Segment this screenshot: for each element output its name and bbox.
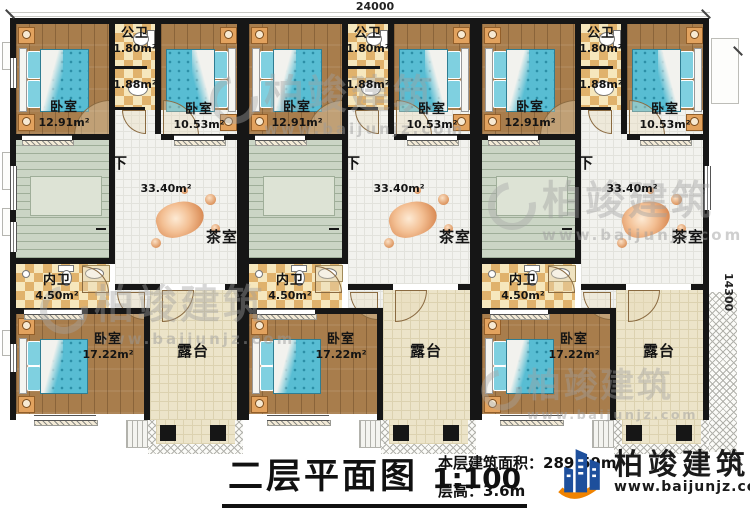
wall xyxy=(348,284,393,290)
window xyxy=(22,135,72,141)
floor-area-label: 本层建筑面积： xyxy=(438,454,543,472)
bed-pillow xyxy=(493,366,507,391)
nightstand xyxy=(484,27,501,44)
nightstand xyxy=(453,27,470,44)
window xyxy=(500,415,562,421)
wall xyxy=(225,284,243,290)
wall xyxy=(348,66,380,69)
terrace-label: 露台 xyxy=(168,342,218,360)
wall xyxy=(581,284,626,290)
nightstand xyxy=(251,396,268,413)
window xyxy=(34,415,96,421)
room-label-bedroom-top-left: 卧室 12.91m² xyxy=(261,100,333,129)
tea-room-area-label: 33.40m² xyxy=(592,182,672,195)
tea-room-label: 茶室 xyxy=(198,228,246,246)
company-logo: 柏竣建筑 www.baijunjz.com xyxy=(556,444,750,500)
wall xyxy=(581,107,611,110)
terrace-pillar xyxy=(210,425,226,441)
stair-direction-mark xyxy=(562,228,572,230)
nightstand xyxy=(18,27,35,44)
nightstand xyxy=(484,396,501,413)
terrace-label: 露台 xyxy=(634,342,684,360)
tea-room-area-label: 33.40m² xyxy=(126,182,206,195)
bed-pillow xyxy=(27,341,41,366)
staircase xyxy=(482,140,575,258)
wall xyxy=(144,314,150,420)
wall xyxy=(610,314,616,420)
window xyxy=(10,166,17,210)
terrace-pillar xyxy=(443,425,459,441)
pebble xyxy=(205,194,216,205)
staircase xyxy=(16,140,109,258)
wall xyxy=(243,258,348,264)
nightstand xyxy=(251,318,268,335)
wall xyxy=(115,107,145,110)
stairs-down-label: 下 xyxy=(108,154,132,172)
staircase xyxy=(249,140,342,258)
terrace-pillar xyxy=(160,425,176,441)
window xyxy=(10,222,17,252)
bed-pillow xyxy=(214,51,228,79)
unit-1: 卧室 12.91m² 公卫 1.80m² 1.88m² 卧室 10.53m² 下… xyxy=(10,18,243,420)
logo-site: www.baijunjz.com xyxy=(614,479,750,495)
bed-pillow xyxy=(27,51,41,79)
wall xyxy=(691,284,709,290)
wall xyxy=(458,284,476,290)
bed-sheet xyxy=(507,340,529,393)
stair-direction-mark xyxy=(96,228,106,230)
logo-name: 柏竣建筑 xyxy=(614,449,750,479)
floor-plan-canvas: 24000 14300 xyxy=(0,0,750,511)
tea-room-label: 茶室 xyxy=(664,228,712,246)
window xyxy=(10,58,17,88)
room-label-bedroom-top-right: 卧室 10.53m² xyxy=(398,102,466,131)
bed-pillow xyxy=(260,341,274,366)
window xyxy=(704,166,711,210)
window xyxy=(24,309,82,315)
wall xyxy=(348,107,378,110)
wall xyxy=(10,258,115,264)
stair-landing xyxy=(263,176,335,216)
nightstand xyxy=(251,27,268,44)
window xyxy=(407,135,457,141)
unit-2: 卧室 12.91m² 公卫 1.80m² 1.88m² 卧室 10.53m² 下… xyxy=(243,18,476,420)
floor-height-info: 层高：3.6m xyxy=(438,480,525,501)
terrace-pillar xyxy=(676,425,692,441)
wall xyxy=(115,66,147,69)
pebble xyxy=(438,194,449,205)
stairs-down-label: 下 xyxy=(341,154,365,172)
room-label-public-bath: 公卫 1.80m² xyxy=(113,26,157,55)
pebble xyxy=(671,194,682,205)
room-label-public-bath-lower: 1.88m² xyxy=(346,78,390,91)
logo-building-icon xyxy=(556,444,608,500)
bed-headboard xyxy=(252,48,260,112)
stair-direction-mark xyxy=(329,228,339,230)
building: 卧室 12.91m² 公卫 1.80m² 1.88m² 卧室 10.53m² 下… xyxy=(10,18,709,420)
window xyxy=(10,344,17,372)
room-label-inner-bath: 内卫 4.50m² xyxy=(22,273,92,302)
wall xyxy=(703,18,709,420)
room-label-bedroom-top-left: 卧室 12.91m² xyxy=(494,100,566,129)
pebble xyxy=(151,238,161,248)
room-label-bedroom-top-left: 卧室 12.91m² xyxy=(28,100,100,129)
nightstand xyxy=(18,318,35,335)
terrace-steps xyxy=(359,420,383,448)
unit-3: 卧室 12.91m² 公卫 1.80m² 1.88m² 卧室 10.53m² 下… xyxy=(476,18,709,420)
bed-sheet xyxy=(274,340,296,393)
terrace-label: 露台 xyxy=(401,342,451,360)
nightstand xyxy=(220,27,237,44)
dimension-top: 24000 xyxy=(300,0,450,13)
stair-landing xyxy=(496,176,568,216)
window xyxy=(640,135,690,141)
bed-headboard xyxy=(252,338,260,394)
room-label-bedroom-bottom: 卧室 17.22m² xyxy=(536,332,612,361)
wall xyxy=(377,314,383,420)
window xyxy=(255,135,305,141)
tea-room-area-label: 33.40m² xyxy=(359,182,439,195)
bed-headboard xyxy=(485,48,493,112)
terrace-pillar xyxy=(626,425,642,441)
window xyxy=(174,135,224,141)
nightstand xyxy=(686,27,703,44)
pebble xyxy=(617,238,627,248)
window xyxy=(267,415,329,421)
terrace-steps xyxy=(126,420,150,448)
window xyxy=(488,135,538,141)
tea-room-label: 茶室 xyxy=(431,228,479,246)
room-label-bedroom-top-right: 卧室 10.53m² xyxy=(165,102,233,131)
bed-pillow xyxy=(493,51,507,79)
bed-pillow xyxy=(680,51,694,79)
bed-headboard xyxy=(19,338,27,394)
bed-headboard xyxy=(485,338,493,394)
terrace-pillar xyxy=(393,425,409,441)
pebble xyxy=(384,238,394,248)
window xyxy=(257,309,315,315)
stairs-down-label: 下 xyxy=(574,154,598,172)
room-label-public-bath-lower: 1.88m² xyxy=(579,78,623,91)
room-label-public-bath-lower: 1.88m² xyxy=(113,78,157,91)
room-label-bedroom-top-right: 卧室 10.53m² xyxy=(631,102,699,131)
bed-headboard xyxy=(19,48,27,112)
bed-pillow xyxy=(493,341,507,366)
room-label-bedroom-bottom: 卧室 17.22m² xyxy=(303,332,379,361)
floor-height-value: 3.6m xyxy=(483,482,525,500)
nightstand xyxy=(484,318,501,335)
floor-height-label: 层高： xyxy=(438,482,483,500)
wall xyxy=(581,66,613,69)
wall xyxy=(243,18,249,420)
wall xyxy=(476,18,709,24)
window xyxy=(490,309,548,315)
wall xyxy=(10,18,243,24)
room-label-public-bath: 公卫 1.80m² xyxy=(346,26,390,55)
room-label-bedroom-bottom: 卧室 17.22m² xyxy=(70,332,146,361)
bed-sheet xyxy=(41,340,63,393)
stair-landing xyxy=(30,176,102,216)
wall xyxy=(476,18,482,420)
nightstand xyxy=(18,396,35,413)
wall xyxy=(115,284,160,290)
bed-pillow xyxy=(447,51,461,79)
room-label-public-bath: 公卫 1.80m² xyxy=(579,26,623,55)
plan-title-text: 二层平面图 xyxy=(228,448,418,499)
wall xyxy=(476,258,581,264)
wall xyxy=(243,18,476,24)
room-label-inner-bath: 内卫 4.50m² xyxy=(255,273,325,302)
room-label-inner-bath: 内卫 4.50m² xyxy=(488,273,558,302)
bed-pillow xyxy=(27,366,41,391)
dimension-right: 14300 xyxy=(722,252,735,332)
bed-pillow xyxy=(260,366,274,391)
bed-pillow xyxy=(260,51,274,79)
